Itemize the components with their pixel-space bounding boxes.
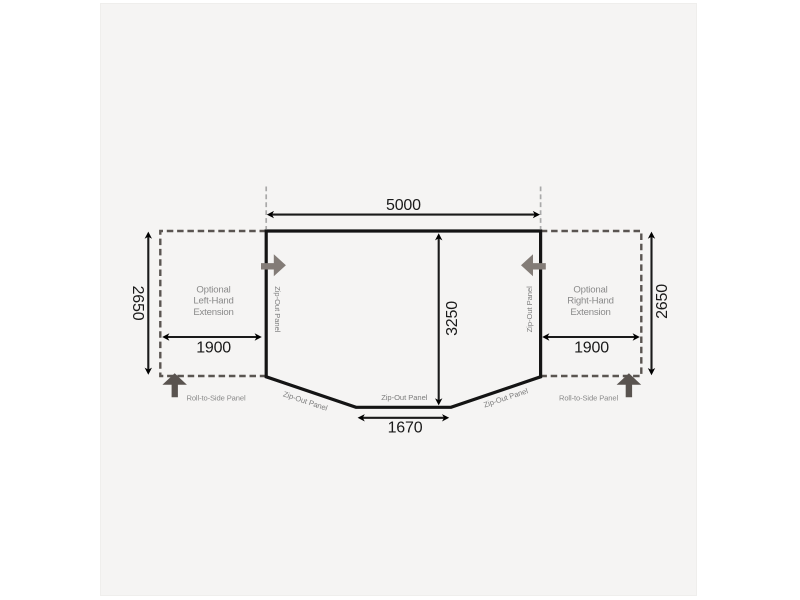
svg-text:Zip-Out Panel: Zip-Out Panel — [273, 286, 282, 333]
svg-text:Right-Hand: Right-Hand — [567, 296, 614, 307]
svg-text:1670: 1670 — [388, 419, 423, 436]
svg-text:Roll-to-Side Panel: Roll-to-Side Panel — [186, 394, 245, 403]
svg-text:Extension: Extension — [570, 307, 610, 318]
svg-text:Left-Hand: Left-Hand — [193, 296, 233, 307]
svg-text:Roll-to-Side Panel: Roll-to-Side Panel — [559, 394, 618, 403]
svg-text:3250: 3250 — [444, 301, 461, 336]
svg-text:2650: 2650 — [129, 286, 146, 321]
svg-text:1900: 1900 — [196, 339, 231, 356]
svg-text:Optional: Optional — [573, 285, 607, 296]
svg-text:Extension: Extension — [193, 307, 233, 318]
svg-text:Zip-Out Panel: Zip-Out Panel — [525, 286, 534, 333]
svg-text:Zip-Out Panel: Zip-Out Panel — [381, 393, 428, 402]
svg-text:1900: 1900 — [574, 339, 609, 356]
svg-text:2650: 2650 — [654, 284, 671, 319]
svg-text:Optional: Optional — [196, 285, 230, 296]
svg-text:5000: 5000 — [386, 197, 421, 214]
